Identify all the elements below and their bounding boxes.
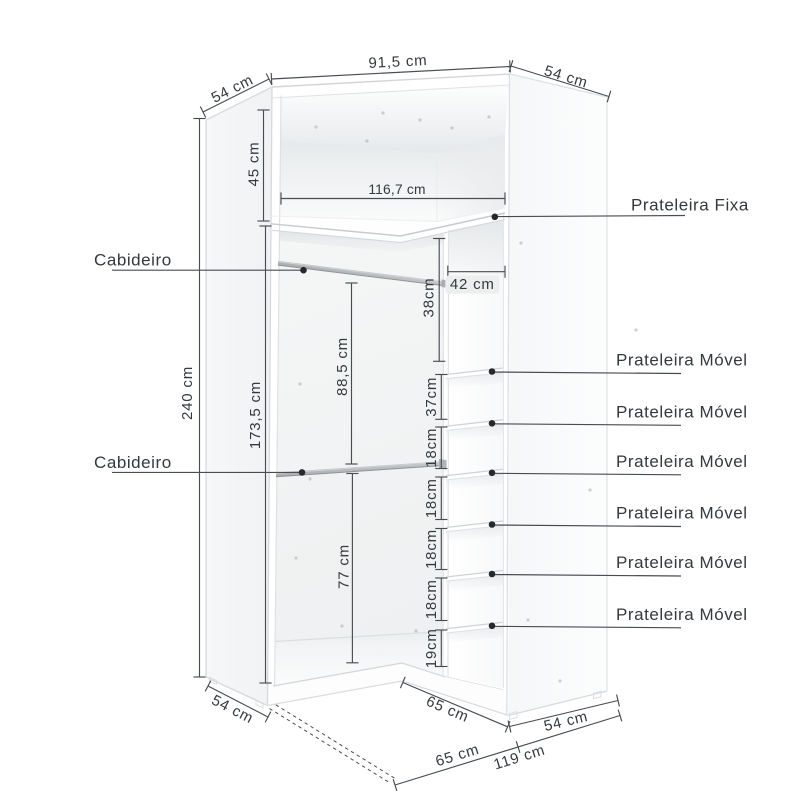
svg-text:Prateleira Móvel: Prateleira Móvel — [616, 351, 748, 370]
svg-text:19cm: 19cm — [423, 628, 440, 668]
svg-text:240 cm: 240 cm — [179, 366, 196, 420]
svg-text:Prateleira Móvel: Prateleira Móvel — [616, 605, 748, 624]
svg-text:88,5 cm: 88,5 cm — [334, 337, 351, 396]
svg-text:Cabideiro: Cabideiro — [94, 251, 172, 270]
svg-text:38cm: 38cm — [421, 278, 438, 318]
svg-text:18cm: 18cm — [423, 529, 440, 569]
svg-text:116,7 cm: 116,7 cm — [368, 182, 425, 197]
svg-text:Prateleira Móvel: Prateleira Móvel — [616, 402, 748, 421]
svg-text:173,5 cm: 173,5 cm — [247, 381, 264, 449]
svg-text:42 cm: 42 cm — [450, 276, 495, 293]
svg-text:18cm: 18cm — [423, 478, 440, 518]
svg-text:Prateleira Móvel: Prateleira Móvel — [616, 452, 748, 471]
svg-text:45 cm: 45 cm — [246, 142, 263, 187]
svg-text:18cm: 18cm — [423, 579, 440, 619]
svg-text:Prateleira Móvel: Prateleira Móvel — [616, 504, 748, 523]
svg-text:18cm: 18cm — [423, 428, 440, 468]
svg-text:91,5 cm: 91,5 cm — [368, 52, 428, 72]
svg-text:Prateleira Fixa: Prateleira Fixa — [631, 195, 749, 214]
svg-text:37cm: 37cm — [423, 377, 440, 417]
svg-text:Prateleira Móvel: Prateleira Móvel — [616, 553, 748, 572]
svg-text:77 cm: 77 cm — [336, 544, 353, 589]
svg-text:Cabideiro: Cabideiro — [94, 453, 172, 472]
